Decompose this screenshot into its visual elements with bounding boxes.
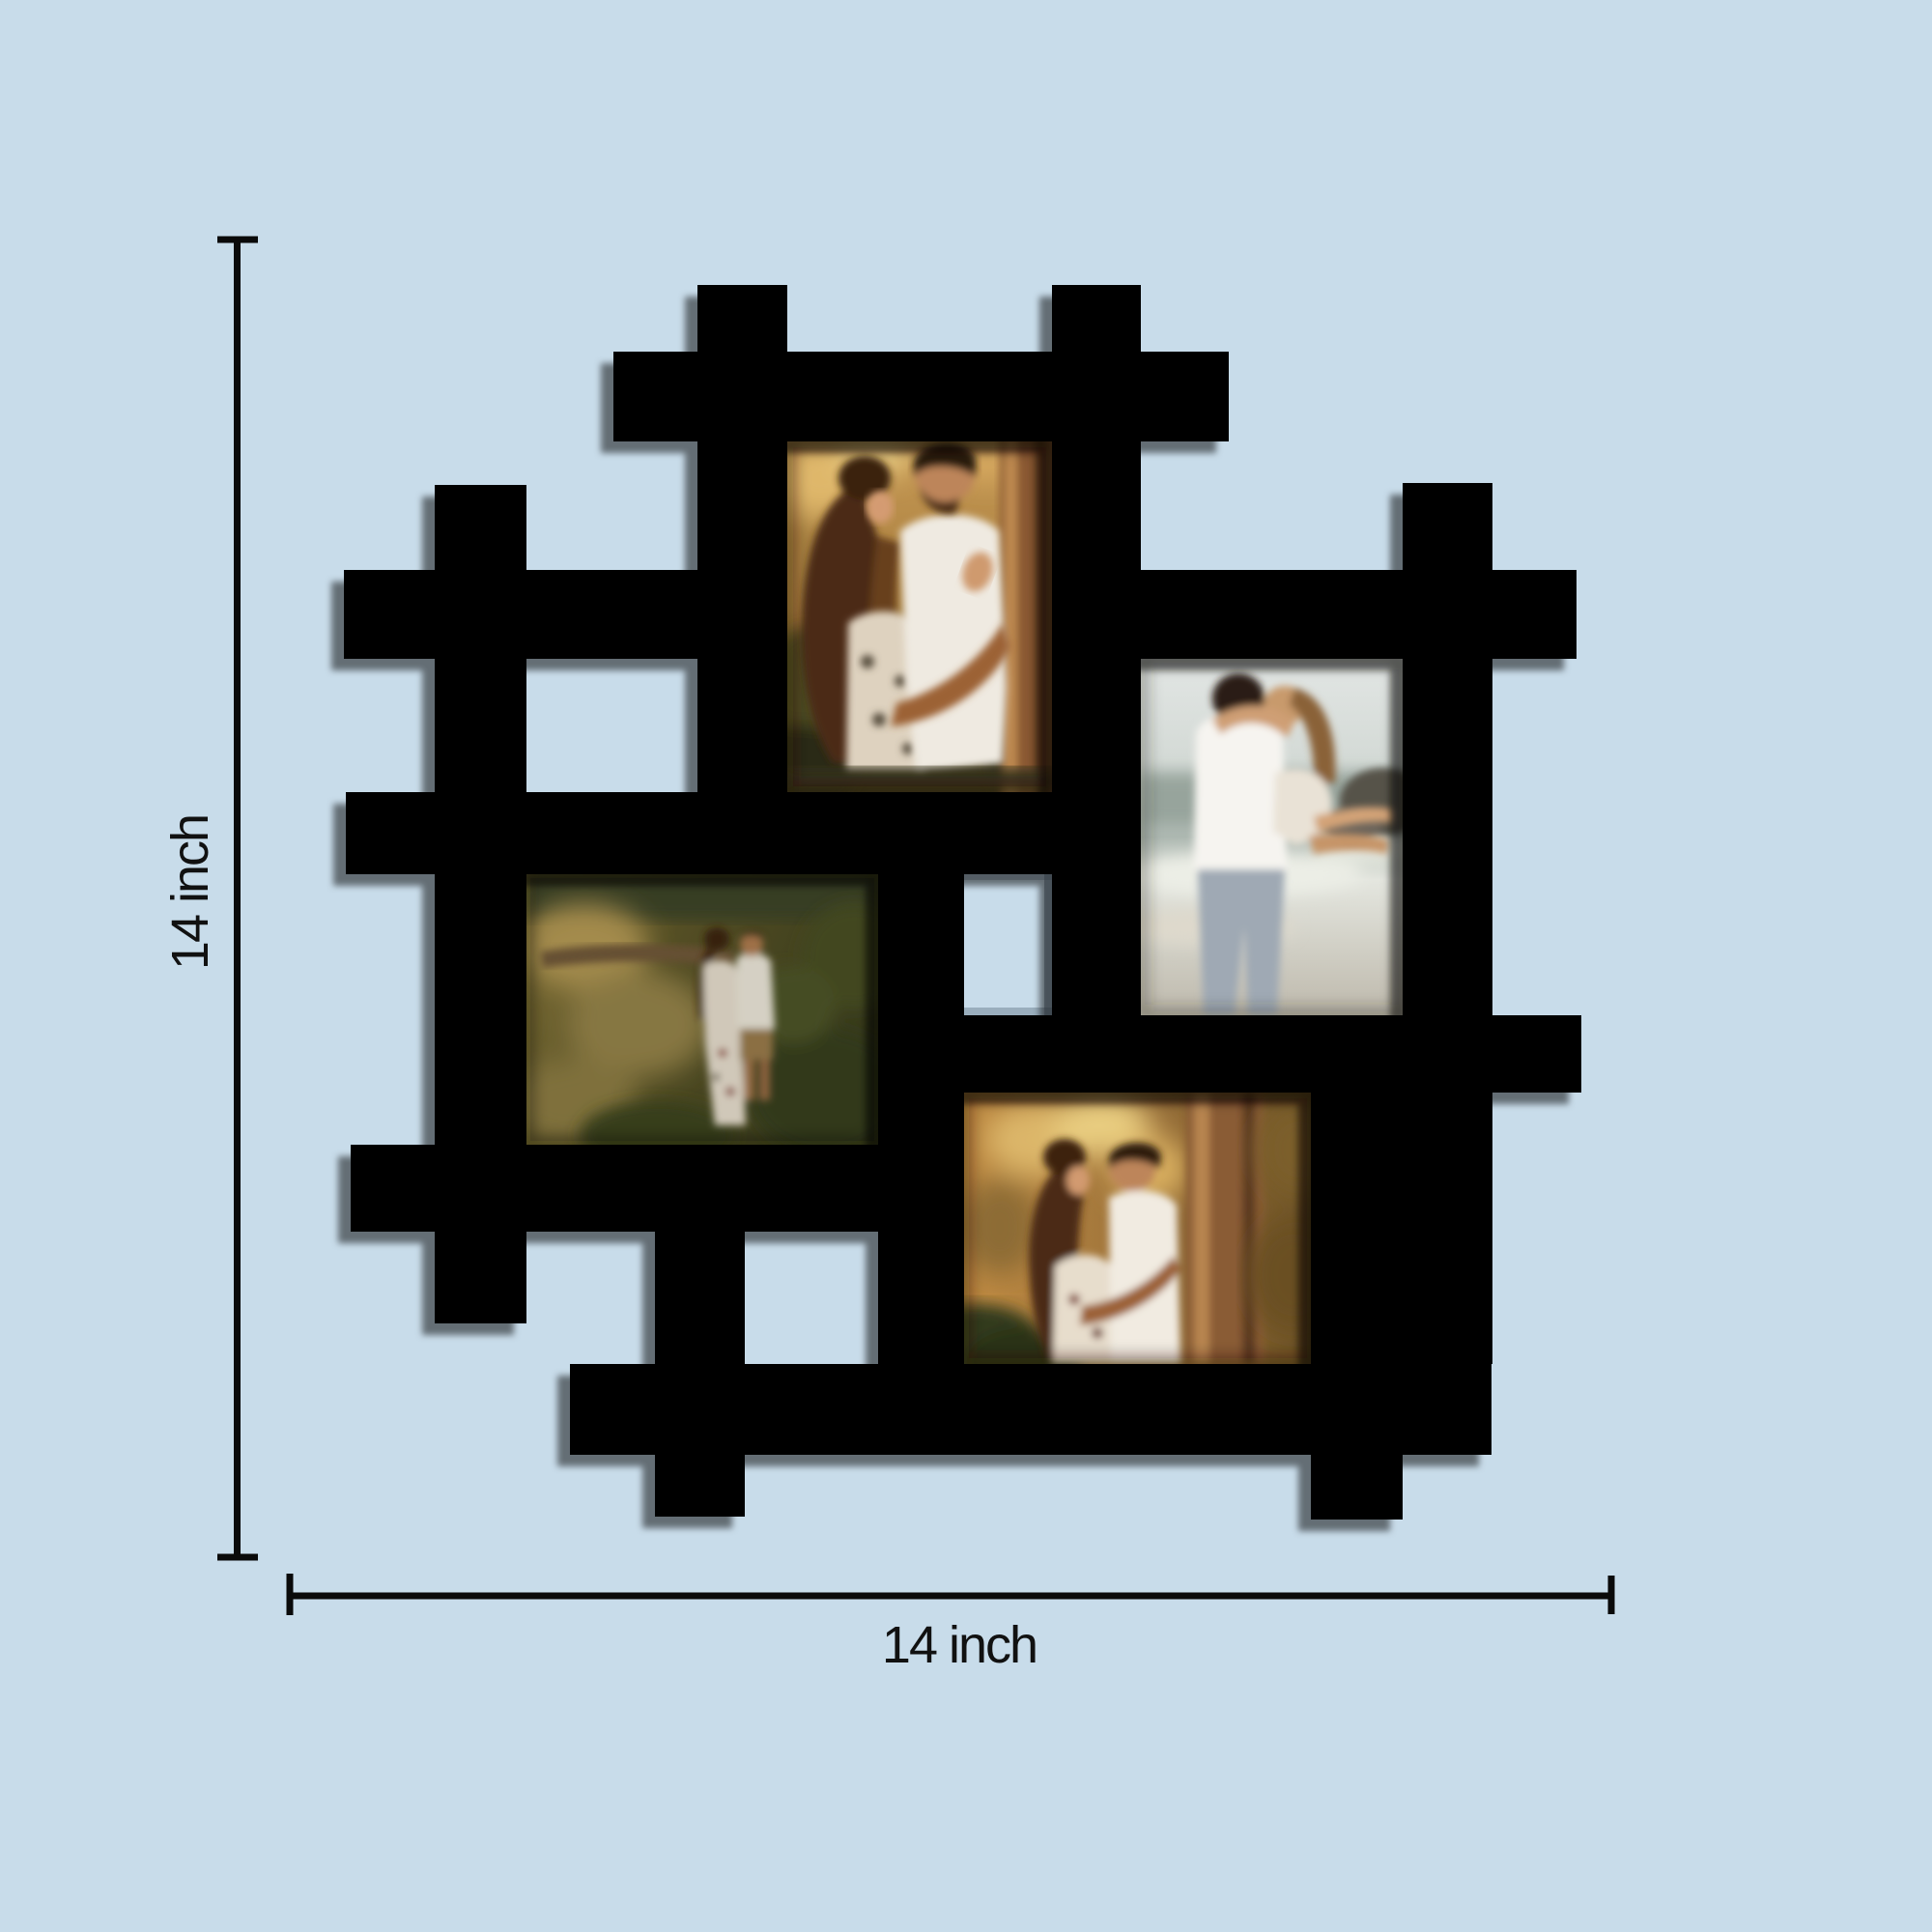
svg-text:14 inch: 14 inch	[161, 815, 219, 970]
svg-text:14 inch: 14 inch	[882, 1616, 1037, 1674]
